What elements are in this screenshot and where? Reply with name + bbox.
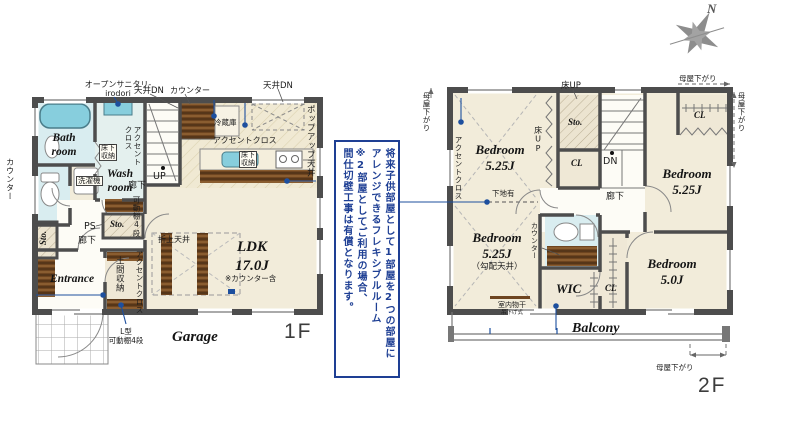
room-sto-left: Sto. bbox=[38, 231, 48, 245]
room-wic: WIC bbox=[556, 281, 581, 297]
bathtub bbox=[40, 104, 90, 128]
label-moya-left: 母屋下がり bbox=[422, 92, 431, 132]
note-line-3: ※2部屋としてご利用の場合、 bbox=[353, 148, 367, 370]
label-corridor-hall: 廊下 bbox=[78, 236, 96, 247]
stove bbox=[276, 151, 302, 168]
label-washer: 洗濯機 bbox=[76, 176, 103, 186]
entrance-porch bbox=[36, 312, 108, 364]
label-l-shelf: L型 可動棚4段 bbox=[109, 327, 144, 345]
room-bath: Bath room bbox=[52, 131, 77, 160]
label-shitaji: 下地有 bbox=[492, 189, 515, 198]
label-dn: DN bbox=[603, 156, 617, 167]
label-corridor-2f: 廊下 bbox=[606, 192, 624, 203]
floor2-label: 2F bbox=[698, 374, 727, 398]
toilet-2f bbox=[554, 223, 594, 241]
room-bedroom-4: Bedroom 5.0J bbox=[647, 256, 696, 289]
label-floor-up-left: 床UP bbox=[533, 126, 543, 154]
label-counter-left: カウンター bbox=[5, 158, 15, 201]
label-underfloor-wash: 床下 収納 bbox=[99, 144, 117, 161]
room-cl-topright: CL bbox=[694, 110, 706, 120]
label-up: UP bbox=[153, 171, 166, 182]
floor1-label: 1F bbox=[284, 320, 313, 344]
kitchen-counter bbox=[181, 103, 215, 139]
label-floor-up-top: 床UP bbox=[561, 81, 581, 91]
toilet-counter bbox=[547, 246, 597, 266]
label-balcony: Balcony bbox=[572, 320, 619, 338]
compass-icon bbox=[666, 1, 731, 66]
label-counter-2f: カウンター bbox=[530, 222, 538, 260]
label-open-sanitary-sub: irodori bbox=[105, 89, 131, 99]
label-moya-right: 母屋下がり bbox=[737, 92, 746, 132]
label-underfloor-kitchen: 床下 収納 bbox=[239, 151, 257, 168]
room-cl-bottom: CL bbox=[605, 283, 617, 293]
drying-bar bbox=[490, 296, 530, 299]
room-ldk: LDK 17.0J bbox=[235, 238, 269, 276]
label-doma-storage: 土間収納 bbox=[114, 256, 124, 292]
label-accent-2f: アクセントクロス bbox=[454, 136, 463, 200]
room-sto-2f: Sto. bbox=[568, 117, 582, 127]
room-cl-mid: CL bbox=[571, 158, 583, 168]
room-bedroom-3: Bedroom 5.25J bbox=[472, 230, 521, 263]
label-drying-2: 吊下げ式 bbox=[501, 310, 523, 317]
compass-north-label: N bbox=[707, 1, 716, 17]
flexible-room-note: 将来子供部屋として1部屋を2つの部屋に アレンジできるフレキシブルルーム ※2部… bbox=[334, 140, 400, 378]
label-garage: Garage bbox=[172, 328, 218, 347]
note-line-1: 将来子供部屋として1部屋を2つの部屋に bbox=[381, 148, 395, 370]
label-drying-1: 室内物干 bbox=[498, 301, 526, 309]
floor2-plan bbox=[392, 82, 737, 359]
label-accent-wash: アクセント クロス bbox=[124, 126, 142, 166]
label-ps: PS bbox=[84, 221, 96, 232]
label-corridor-stairs: 廊下 bbox=[128, 181, 146, 192]
label-ceiling-dn-left: 天井DN bbox=[134, 86, 164, 96]
note-line-4: 間仕切壁工事は有償となります。 bbox=[339, 148, 353, 370]
label-moya-topright: 母屋下がり bbox=[679, 74, 717, 83]
floorplan-page: 将来子供部屋として1部屋を2つの部屋に アレンジできるフレキシブルルーム ※2部… bbox=[0, 0, 786, 426]
label-raised-ceiling: 折上天井 bbox=[158, 235, 190, 245]
label-moya-bottom: 母屋下がり bbox=[656, 363, 694, 372]
label-popup-ceiling: ポップアップ天井 bbox=[305, 105, 315, 177]
note-line-2: アレンジできるフレキシブルルーム bbox=[367, 148, 381, 370]
room-sto-mid: Sto. bbox=[110, 219, 124, 229]
label-counter-top: カウンター bbox=[170, 86, 210, 96]
toilet-1f bbox=[41, 173, 59, 206]
label-fridge: 冷蔵庫 bbox=[214, 118, 237, 127]
room-bedroom-1: Bedroom 5.25J bbox=[475, 142, 524, 175]
label-sloped-ceiling: （勾配天井） bbox=[471, 262, 522, 272]
label-accent-kitchen: アクセントクロス bbox=[213, 136, 277, 146]
label-accent-entrance: アクセントクロス bbox=[135, 250, 144, 314]
label-ceiling-dn-right: 天井DN bbox=[263, 81, 293, 91]
label-shelf-mid: 可動棚4段 bbox=[132, 196, 141, 238]
label-ldk-note: ※カウンター含 bbox=[225, 274, 276, 283]
room-bedroom-2: Bedroom 5.25J bbox=[662, 166, 711, 199]
room-entrance: Entrance bbox=[50, 272, 94, 286]
